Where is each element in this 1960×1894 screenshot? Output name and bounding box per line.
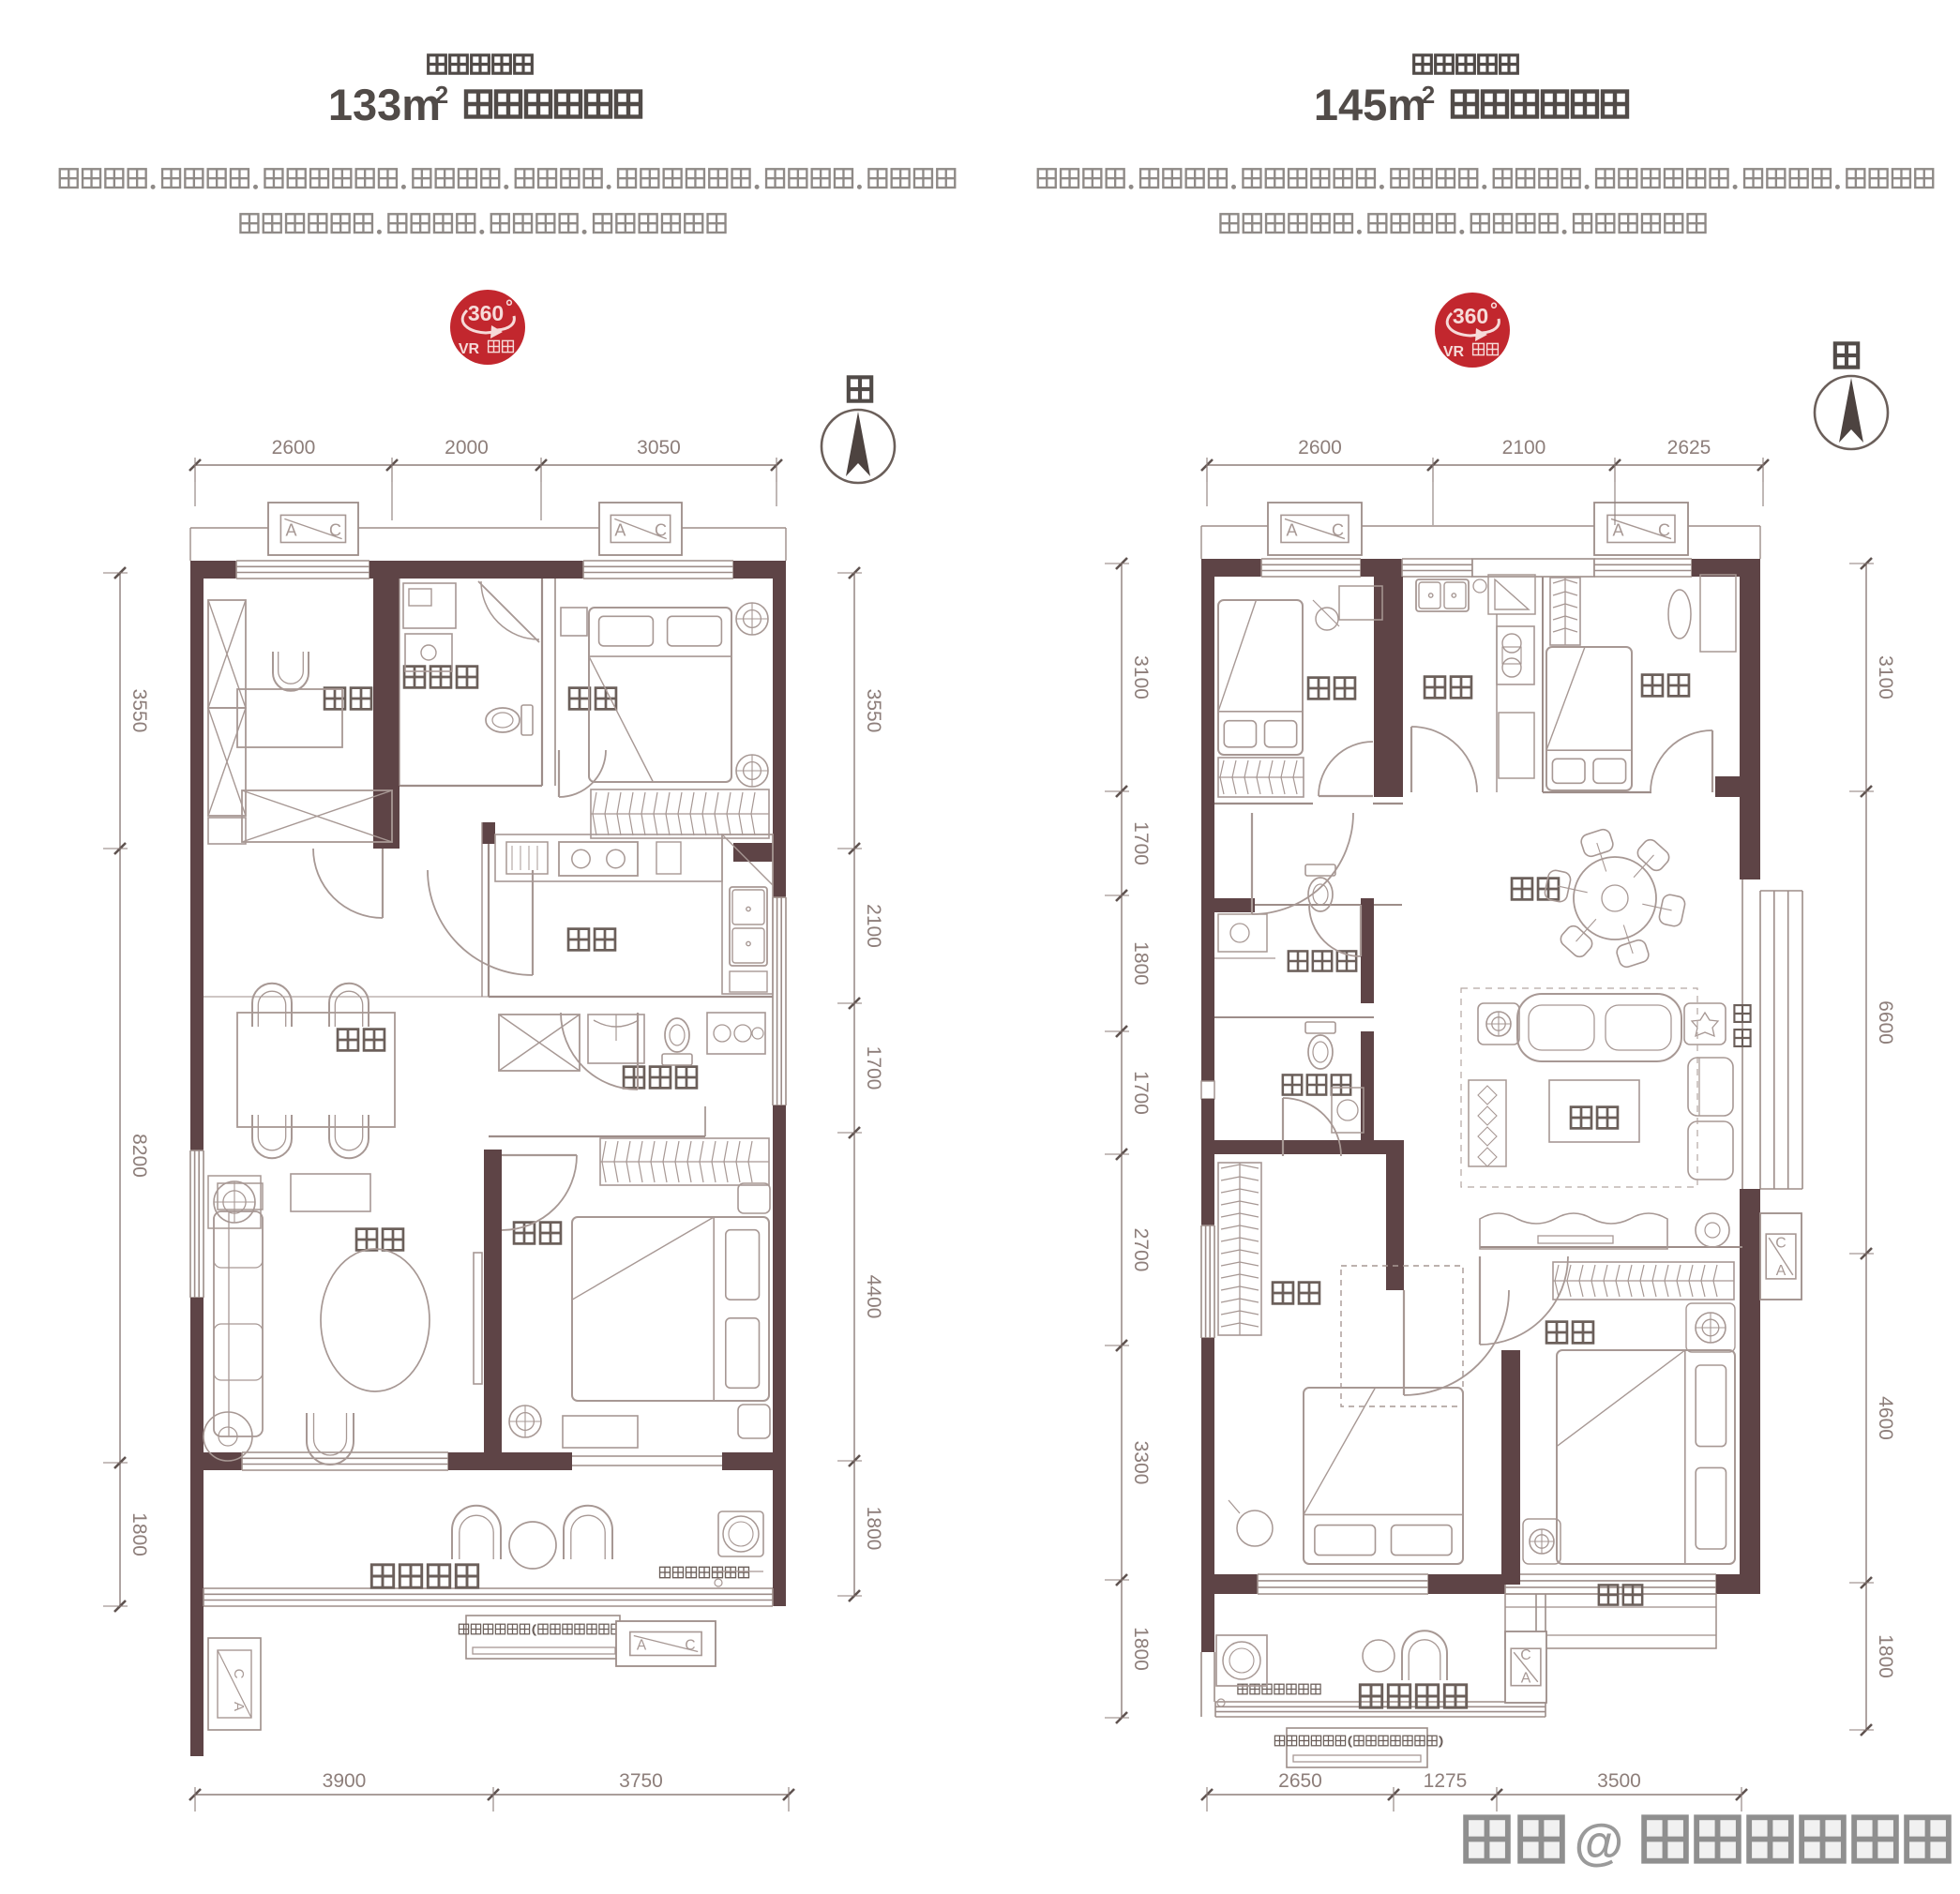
svg-text:1800: 1800 [1130, 1627, 1152, 1671]
svg-text:4400: 4400 [863, 1275, 884, 1319]
svg-text:6600: 6600 [1875, 1000, 1896, 1045]
svg-text:3500: 3500 [1597, 1770, 1641, 1792]
svg-text:C: C [685, 1637, 695, 1653]
svg-text:3550: 3550 [863, 689, 884, 733]
svg-text:C: C [1775, 1235, 1786, 1251]
svg-text:(: ( [532, 1623, 535, 1636]
svg-text:2700: 2700 [1130, 1228, 1152, 1272]
svg-text:@: @ [1575, 1814, 1624, 1871]
svg-text:): ) [1440, 1735, 1443, 1748]
svg-text:3550: 3550 [128, 689, 150, 733]
svg-text:1700: 1700 [1130, 821, 1152, 865]
svg-text:A: A [1286, 521, 1297, 540]
svg-text:3100: 3100 [1875, 655, 1896, 699]
svg-text:°: ° [1490, 300, 1498, 321]
svg-text:°: ° [505, 297, 513, 318]
svg-text:A: A [1776, 1263, 1787, 1279]
svg-text:C: C [655, 521, 667, 540]
svg-text:2600: 2600 [1298, 437, 1342, 458]
svg-text:1800: 1800 [128, 1512, 150, 1556]
svg-text:8200: 8200 [128, 1134, 150, 1178]
svg-text:2625: 2625 [1667, 437, 1711, 458]
svg-text:1700: 1700 [863, 1046, 884, 1090]
svg-text:133m: 133m [328, 80, 441, 129]
svg-text:A: A [637, 1637, 647, 1653]
svg-text:1800: 1800 [863, 1507, 884, 1551]
svg-text:1700: 1700 [1130, 1071, 1152, 1115]
svg-text:A: A [231, 1702, 247, 1711]
svg-text:3750: 3750 [619, 1770, 663, 1792]
svg-text:C: C [1332, 521, 1344, 540]
svg-text:1800: 1800 [1875, 1634, 1896, 1678]
svg-text:3100: 3100 [1130, 655, 1152, 699]
svg-text:2000: 2000 [445, 437, 489, 458]
svg-text:2: 2 [1422, 81, 1435, 109]
svg-text:2100: 2100 [1502, 437, 1546, 458]
svg-text:2100: 2100 [863, 904, 884, 948]
svg-text:2600: 2600 [272, 437, 316, 458]
svg-text:VR: VR [459, 341, 480, 357]
svg-text:3300: 3300 [1130, 1441, 1152, 1485]
svg-text:C: C [231, 1669, 247, 1679]
svg-text:C: C [1658, 521, 1670, 540]
svg-text:145m: 145m [1314, 80, 1426, 129]
svg-text:2: 2 [435, 81, 448, 109]
svg-text:360: 360 [468, 301, 504, 325]
svg-text:A: A [614, 521, 626, 540]
svg-text:2650: 2650 [1278, 1770, 1322, 1792]
svg-text:VR: VR [1443, 344, 1465, 360]
svg-text:(: ( [1348, 1735, 1351, 1748]
svg-text:C: C [329, 521, 341, 540]
svg-text:1800: 1800 [1130, 941, 1152, 985]
svg-text:A: A [285, 521, 296, 540]
svg-text:A: A [1521, 1671, 1531, 1687]
svg-text:1275: 1275 [1424, 1770, 1468, 1792]
svg-text:3900: 3900 [323, 1770, 367, 1792]
svg-text:4600: 4600 [1875, 1396, 1896, 1440]
svg-text:360: 360 [1453, 304, 1488, 328]
svg-text:3050: 3050 [637, 437, 681, 458]
svg-text:A: A [1612, 521, 1623, 540]
svg-text:C: C [1520, 1647, 1530, 1663]
